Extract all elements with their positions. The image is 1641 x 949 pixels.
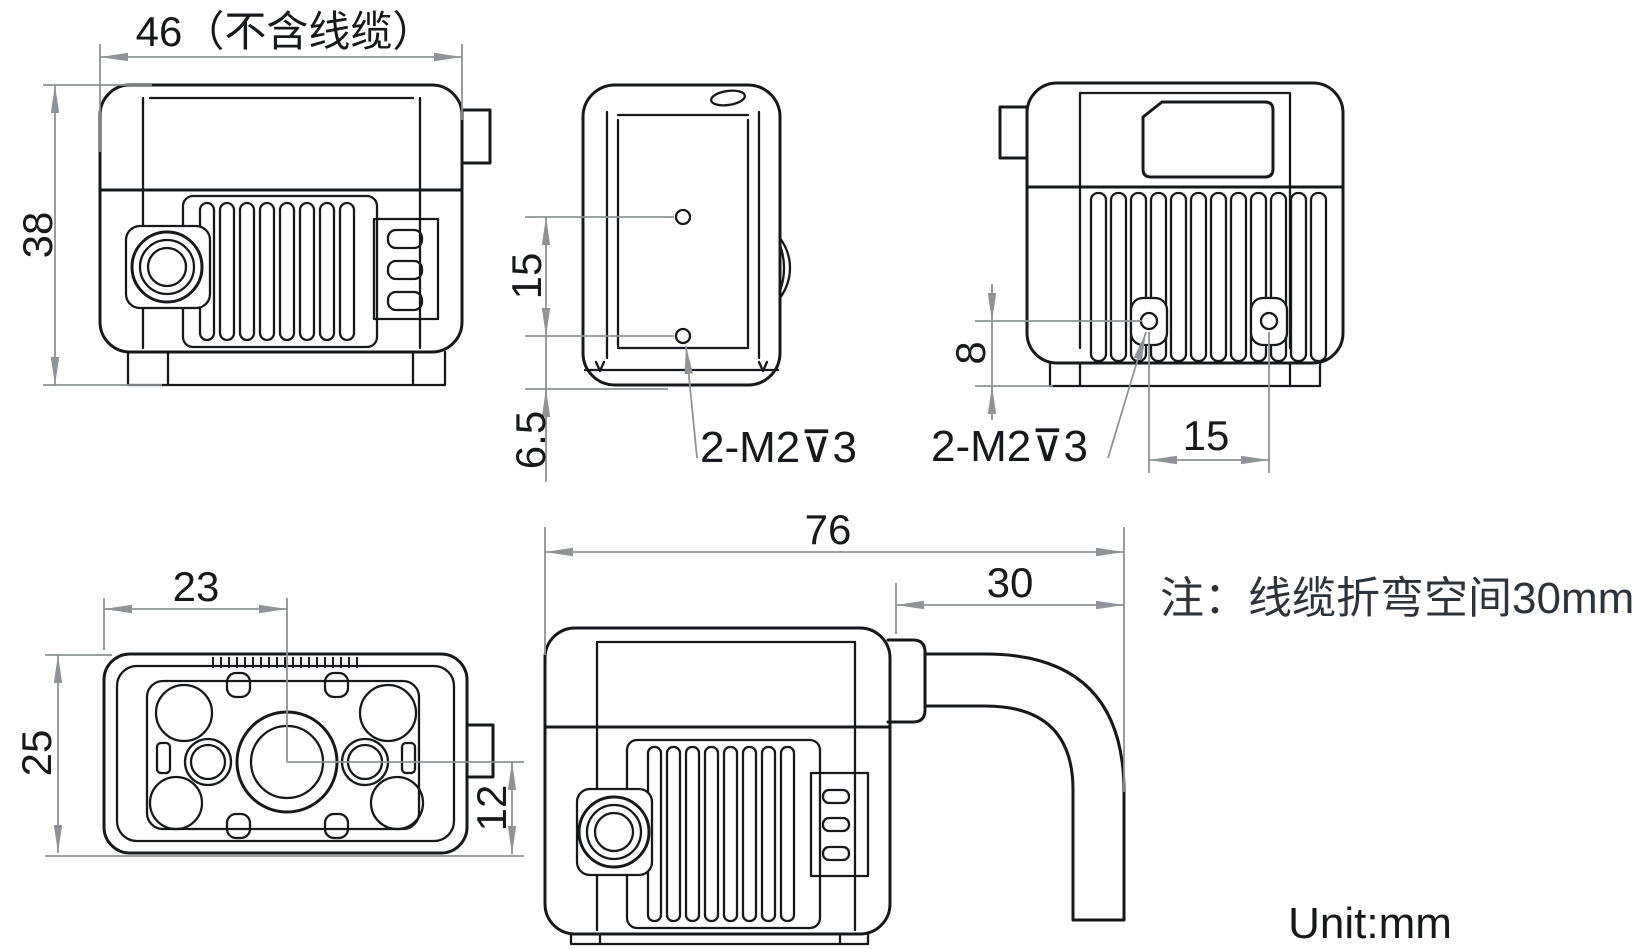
dim-hole-to-base-8: 8: [947, 284, 1142, 420]
cable-gland: [888, 640, 925, 722]
heatsink-fins: [200, 203, 354, 340]
dim-label-total: 76: [805, 506, 852, 553]
dim-height-25: 25: [13, 655, 524, 856]
mount-base: [1050, 363, 1320, 386]
heatsink-fins: [1091, 193, 1326, 361]
view-rear: 8 2-M2⊽3 15: [931, 83, 1343, 473]
indicator-panel: [374, 219, 438, 319]
mount-base: [128, 352, 445, 385]
dim-label-height: 38: [14, 212, 61, 259]
label-window: [1143, 102, 1273, 177]
dim-label-lens-to-base: 12: [468, 785, 515, 832]
dim-label-hole-spacing: 15: [503, 253, 550, 300]
view-front: 23 25 12: [13, 563, 524, 856]
thread-callout: 2-M2⊽3: [686, 346, 857, 472]
cable-bend-note: 注：线缆折弯空间30mm: [1160, 574, 1634, 623]
dim-label-width: 46（不含线缆）: [136, 8, 435, 55]
dim-label-height: 25: [13, 730, 60, 777]
unit-label: Unit:mm: [1288, 899, 1452, 948]
dim-lens-offset-23: 23: [104, 563, 287, 762]
dim-label-hole-to-base: 8: [947, 341, 994, 364]
thread-label: 2-M2⊽3: [931, 422, 1088, 471]
dim-edge-6-5: 6.5: [507, 336, 668, 482]
face-panel: [147, 681, 419, 829]
lens-pedestal: [126, 226, 210, 308]
dim-label-bend: 30: [987, 559, 1034, 606]
dim-label-edge-offset: 6.5: [507, 411, 554, 469]
cable: [925, 654, 1124, 920]
top-hole: [710, 89, 746, 108]
dimension-drawing: 46（不含线缆） 38 15 6.5 2-M2⊽3: [0, 0, 1641, 949]
dim-bend-30: 30: [896, 559, 1124, 634]
dim-width-46: 46（不含线缆）: [100, 8, 462, 152]
dim-hole-spacing-15: 15: [503, 217, 674, 336]
dim-label-lens-offset: 23: [173, 563, 220, 610]
view-bottom: 15 6.5 2-M2⊽3: [503, 85, 857, 482]
indicator-leds: [388, 230, 422, 310]
heatsink-fins: [648, 747, 794, 921]
inner-outline: [117, 666, 454, 841]
view-side: 46（不含线缆） 38: [14, 8, 490, 385]
dimension-drawing-page: 46（不含线缆） 38 15 6.5 2-M2⊽3: [0, 0, 1641, 949]
mount-hole-lower: [676, 329, 690, 343]
mount-hole-upper: [676, 210, 690, 224]
lid-seams: [143, 98, 420, 348]
cable-connector-stub: [462, 110, 490, 163]
cable-connector-stub: [1000, 107, 1027, 158]
dim-total-76: 76: [545, 506, 1124, 792]
bottom-lip: [585, 362, 778, 371]
thread-label: 2-M2⊽3: [700, 423, 857, 472]
side-walls: [607, 112, 759, 358]
lid-seams: [597, 642, 855, 930]
cable-connector-stub: [467, 725, 493, 777]
device-outline: [583, 85, 780, 385]
view-side-cable: 76 30: [545, 506, 1124, 944]
indicator-leds: [823, 790, 849, 860]
dim-label-hole-spacing: 15: [1183, 412, 1230, 459]
